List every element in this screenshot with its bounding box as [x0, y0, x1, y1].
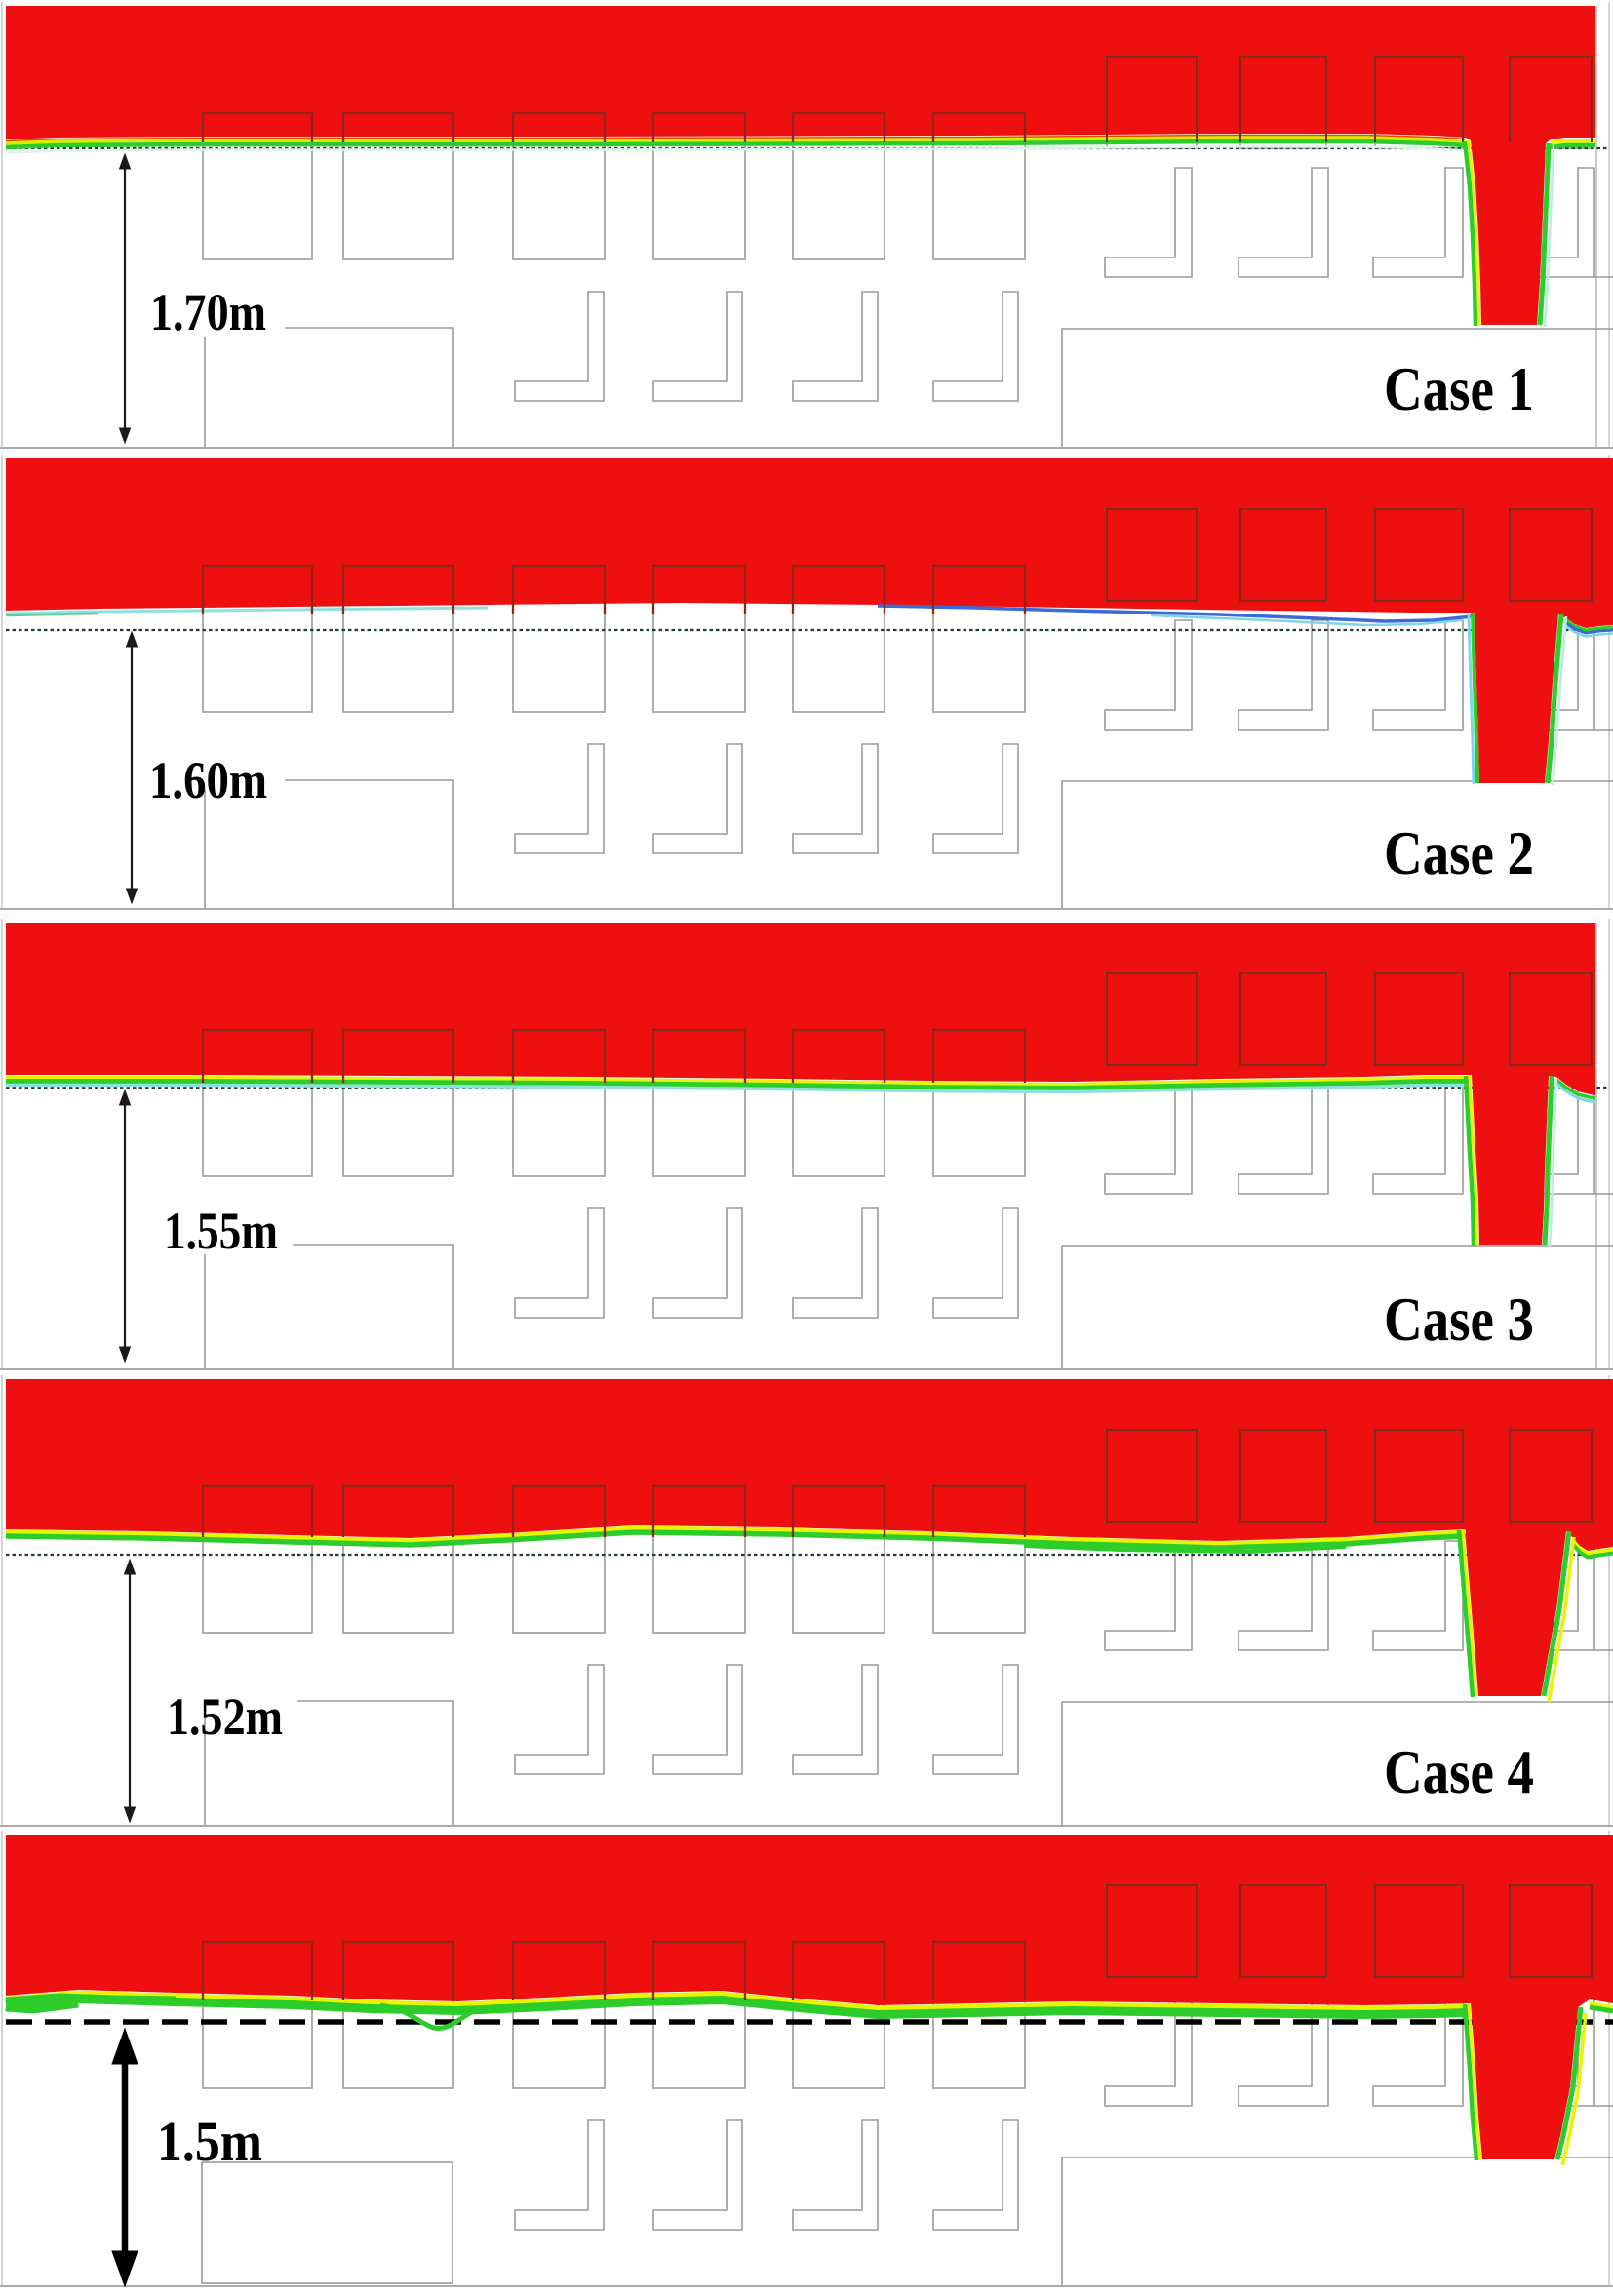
svg-text:Case 4: Case 4: [1384, 1737, 1534, 1806]
svg-text:Case 1: Case 1: [1384, 354, 1534, 423]
svg-text:Case 2: Case 2: [1384, 818, 1534, 888]
svg-text:1.5m: 1.5m: [157, 2110, 262, 2173]
svg-text:Case 3: Case 3: [1384, 1285, 1534, 1354]
svg-text:1.70m: 1.70m: [150, 283, 266, 341]
svg-text:1.52m: 1.52m: [167, 1687, 283, 1746]
svg-text:1.60m: 1.60m: [149, 751, 267, 810]
svg-text:1.55m: 1.55m: [164, 1202, 278, 1260]
